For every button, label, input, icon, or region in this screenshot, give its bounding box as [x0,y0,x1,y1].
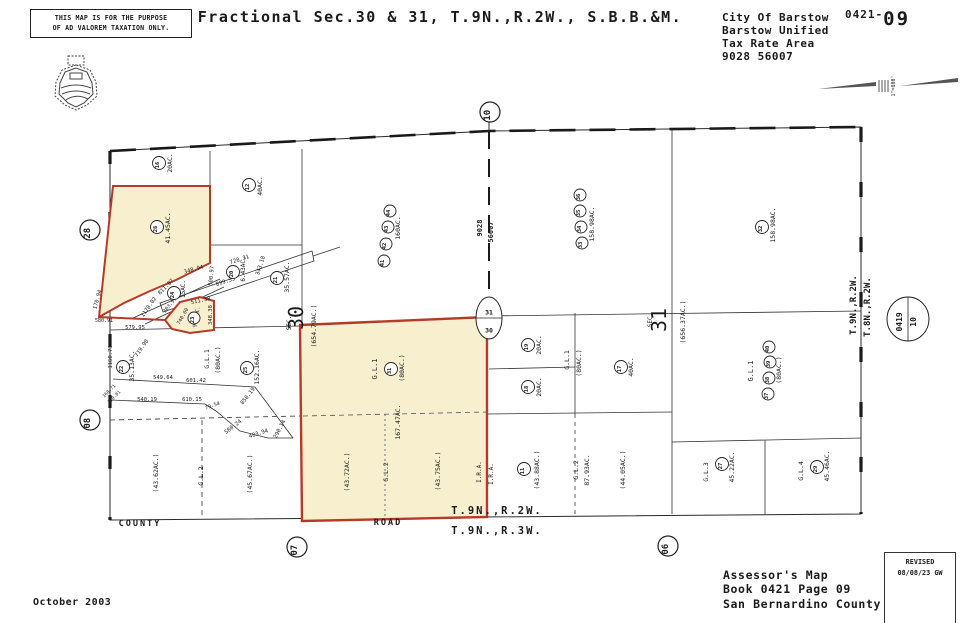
map-label: 20AC. [535,377,543,397]
map-label: 45.46AC. [823,450,831,481]
circled-number-label: 40 [765,346,771,353]
circled-number-19: 19 [522,339,535,352]
circled-number-27: 27 [716,458,729,471]
circled-number-label: 26 [153,225,159,232]
map-label: 56007 [487,221,495,242]
circled-number-16: 16 [153,157,166,170]
map-label: (43.62AC.) [152,453,160,492]
map-label: 850.19 [240,387,257,406]
circled-number-21: 21 [271,272,284,285]
assessor-map-page: { "header": { "disclaimer_line1": "THIS … [0,0,960,623]
map-label: G.L.2 [382,462,390,482]
map-label: 540.19 [137,397,157,403]
circled-number-29: 29 [811,461,824,474]
map-label: 31 [647,308,671,332]
circled-number-label: 39 [766,361,772,368]
circled-number-label: 38 [765,377,771,384]
circled-number-41: 41 [378,255,390,267]
map-label: 158.98AC. [769,207,777,242]
map-label: 87.93AC. [583,454,591,485]
circled-number-22: 22 [117,361,130,374]
circled-number-40: 40 [763,341,775,353]
map-label: T.8N.,R.2W. [863,277,873,337]
map-label: G.L.2 [572,460,580,480]
map-label: (43.88AC.) [533,450,541,489]
map-label: G.L.1 [747,360,755,381]
map-label: G.L.1 [203,349,211,369]
circled-number-label: 32 [758,226,764,233]
map-label: 601.42 [186,378,206,384]
map-label: (80AC.) [214,346,222,373]
map-label: (43.75AC.) [434,451,442,490]
circled-number-33: 33 [576,237,588,249]
circled-number-38: 38 [763,372,775,384]
circled-number-label: 27 [718,463,724,470]
circled-number-label: 12 [245,184,251,191]
map-label: 9028 [476,220,484,237]
circled-number-25: 25 [241,362,254,375]
circled-number-label: 34 [577,225,583,232]
circled-number-28: 28 [80,220,100,240]
circled-number-31: 31 [385,363,398,376]
circled-number-label: 36 [576,193,582,200]
map-label: (43.72AC.) [343,452,351,491]
map-label: (80AC.) [398,354,406,381]
map-label: ROAD [374,518,402,528]
map-label: 580.91 [95,318,113,324]
map-label: 41.45AC. [164,212,172,243]
map-label: 79.54 [205,401,221,412]
map-label: (45.67AC.) [246,454,254,493]
map-label: I.R.A. [476,461,483,483]
map-label: (80AC.) [575,349,583,376]
corner-marker-label: 10 [909,317,918,327]
circled-number-37: 37 [762,388,774,400]
circled-number-11: 11 [518,463,531,476]
map-label: 610.15 [182,397,202,403]
circled-number-label: 37 [764,393,770,400]
circled-number-39: 39 [764,356,776,368]
map-label: 719.98 [134,339,150,359]
map-label: 579.95 [125,325,145,331]
circled-number-34: 34 [575,221,587,233]
map-label: G.L.4 [797,461,805,481]
circled-number-10: 10 [480,102,500,122]
circled-number-label: 42 [382,243,388,250]
map-label: G.L.2 [197,466,205,486]
map-label: 30 [284,306,308,330]
map-label: T.9N.,R.3W. [451,525,543,537]
circled-number-label: 22 [119,366,125,373]
map-label: G.L.1 [371,358,379,379]
map-label: 20AC. [166,153,174,173]
circled-number-label: 35 [576,210,582,217]
assessor-line3: San Bernardino County [723,597,881,611]
circled-number-12: 12 [243,179,256,192]
circled-number-18: 18 [522,381,535,394]
circled-number-label: 19 [524,344,530,351]
circled-number-label: 23 [190,317,196,324]
circled-number-label: 20 [229,271,235,278]
map-label: 580.24 [224,418,244,435]
map-label: 158.98AC. [588,206,596,241]
revised-note: 08/08/23 GW [885,568,955,579]
map-label: 160AC. [394,216,402,239]
map-label: 35.57AC. [283,261,291,292]
corner-marker: 041910 [887,297,929,341]
circled-number-26: 26 [151,221,164,234]
map-label: (44.05AC.) [619,450,627,489]
parcel-map: 1"=800' [0,0,960,623]
map-label: 20AC. [535,335,543,355]
circled-number-label: 31 [387,367,393,374]
circled-number-label: 21 [273,276,279,283]
map-label: G.L.3 [702,462,710,482]
circled-number-label: 43 [384,226,390,233]
circled-number-42: 42 [380,238,392,250]
revised-box: REVISED 08/08/23 GW [884,552,956,623]
map-label: I.R.A. [488,463,495,485]
circled-number-label: 28 [83,228,93,239]
map-label: 549.64 [153,375,174,381]
circled-number-label: 10 [483,110,493,121]
assessor-line2: Book 0421 Page 09 [723,582,881,596]
circled-number-label: 41 [380,259,386,266]
circled-number-label: 18 [524,386,530,393]
county-seal-icon [55,56,97,110]
circled-number-label: 06 [661,544,671,555]
assessor-line1: Assessor's Map [723,568,881,582]
circled-number-label: 24 [170,291,176,298]
circled-number-label: 07 [290,545,300,556]
map-label: 1160.73 [108,345,114,368]
map-label: T.9N.,R.2W. [451,505,543,517]
circled-number-label: 25 [243,367,249,374]
map-label: 1178.02 [140,296,158,318]
corner-marker-label: 0419 [895,312,904,331]
map-label: 290.14 [273,419,288,440]
circled-number-06: 06 [658,536,678,556]
map-label: 483.94 [248,428,269,440]
assessor-block: Assessor's Map Book 0421 Page 09 San Ber… [723,568,881,611]
circled-number-36: 36 [574,189,586,201]
map-label: T.9N.,R.2W. [849,275,859,335]
circled-number-label: 17 [617,366,623,373]
circled-number-32: 32 [756,221,769,234]
circled-number-20: 20 [227,266,240,279]
map-label: 152.16AC. [253,349,261,384]
circled-number-43: 43 [382,221,394,233]
map-label: 348.38 [208,305,214,325]
map-label: (656.37AC.) [679,300,687,343]
map-label: 343.18 [255,255,267,276]
circled-number-44: 44 [384,205,396,217]
circled-number-17: 17 [615,361,628,374]
circled-number-label: 33 [578,242,584,249]
corner-marker-label: 31 [485,308,493,316]
circled-number-label: 11 [520,467,526,474]
map-label: 15AC. [180,280,187,298]
corner-marker: 3130 [476,297,502,339]
map-label: COUNTY [119,519,162,529]
map-label: (654.79AC.) [310,304,318,347]
circled-number-label: 08 [83,418,93,429]
circled-number-35: 35 [574,205,586,217]
circled-number-24: 24 [168,287,181,300]
map-label: 45.22AC. [728,451,736,482]
map-label: G.L.1 [563,350,571,370]
map-label: 40AC. [627,357,635,377]
scale-bar: 1"=800' [818,75,958,96]
circled-number-label: 44 [386,209,392,216]
circled-number-08: 08 [80,410,100,430]
corner-marker-label: 30 [485,326,493,334]
circled-number-23: 23 [188,312,200,324]
circled-number-label: 29 [813,466,819,473]
map-label: 167.47AC. [394,404,402,439]
scale-label: 1"=800' [891,75,897,96]
map-date: October 2003 [33,597,111,608]
circled-number-07: 07 [287,537,307,557]
revised-title: REVISED [885,557,955,568]
map-label: 40AC. [256,176,264,196]
circled-number-label: 16 [155,161,161,168]
